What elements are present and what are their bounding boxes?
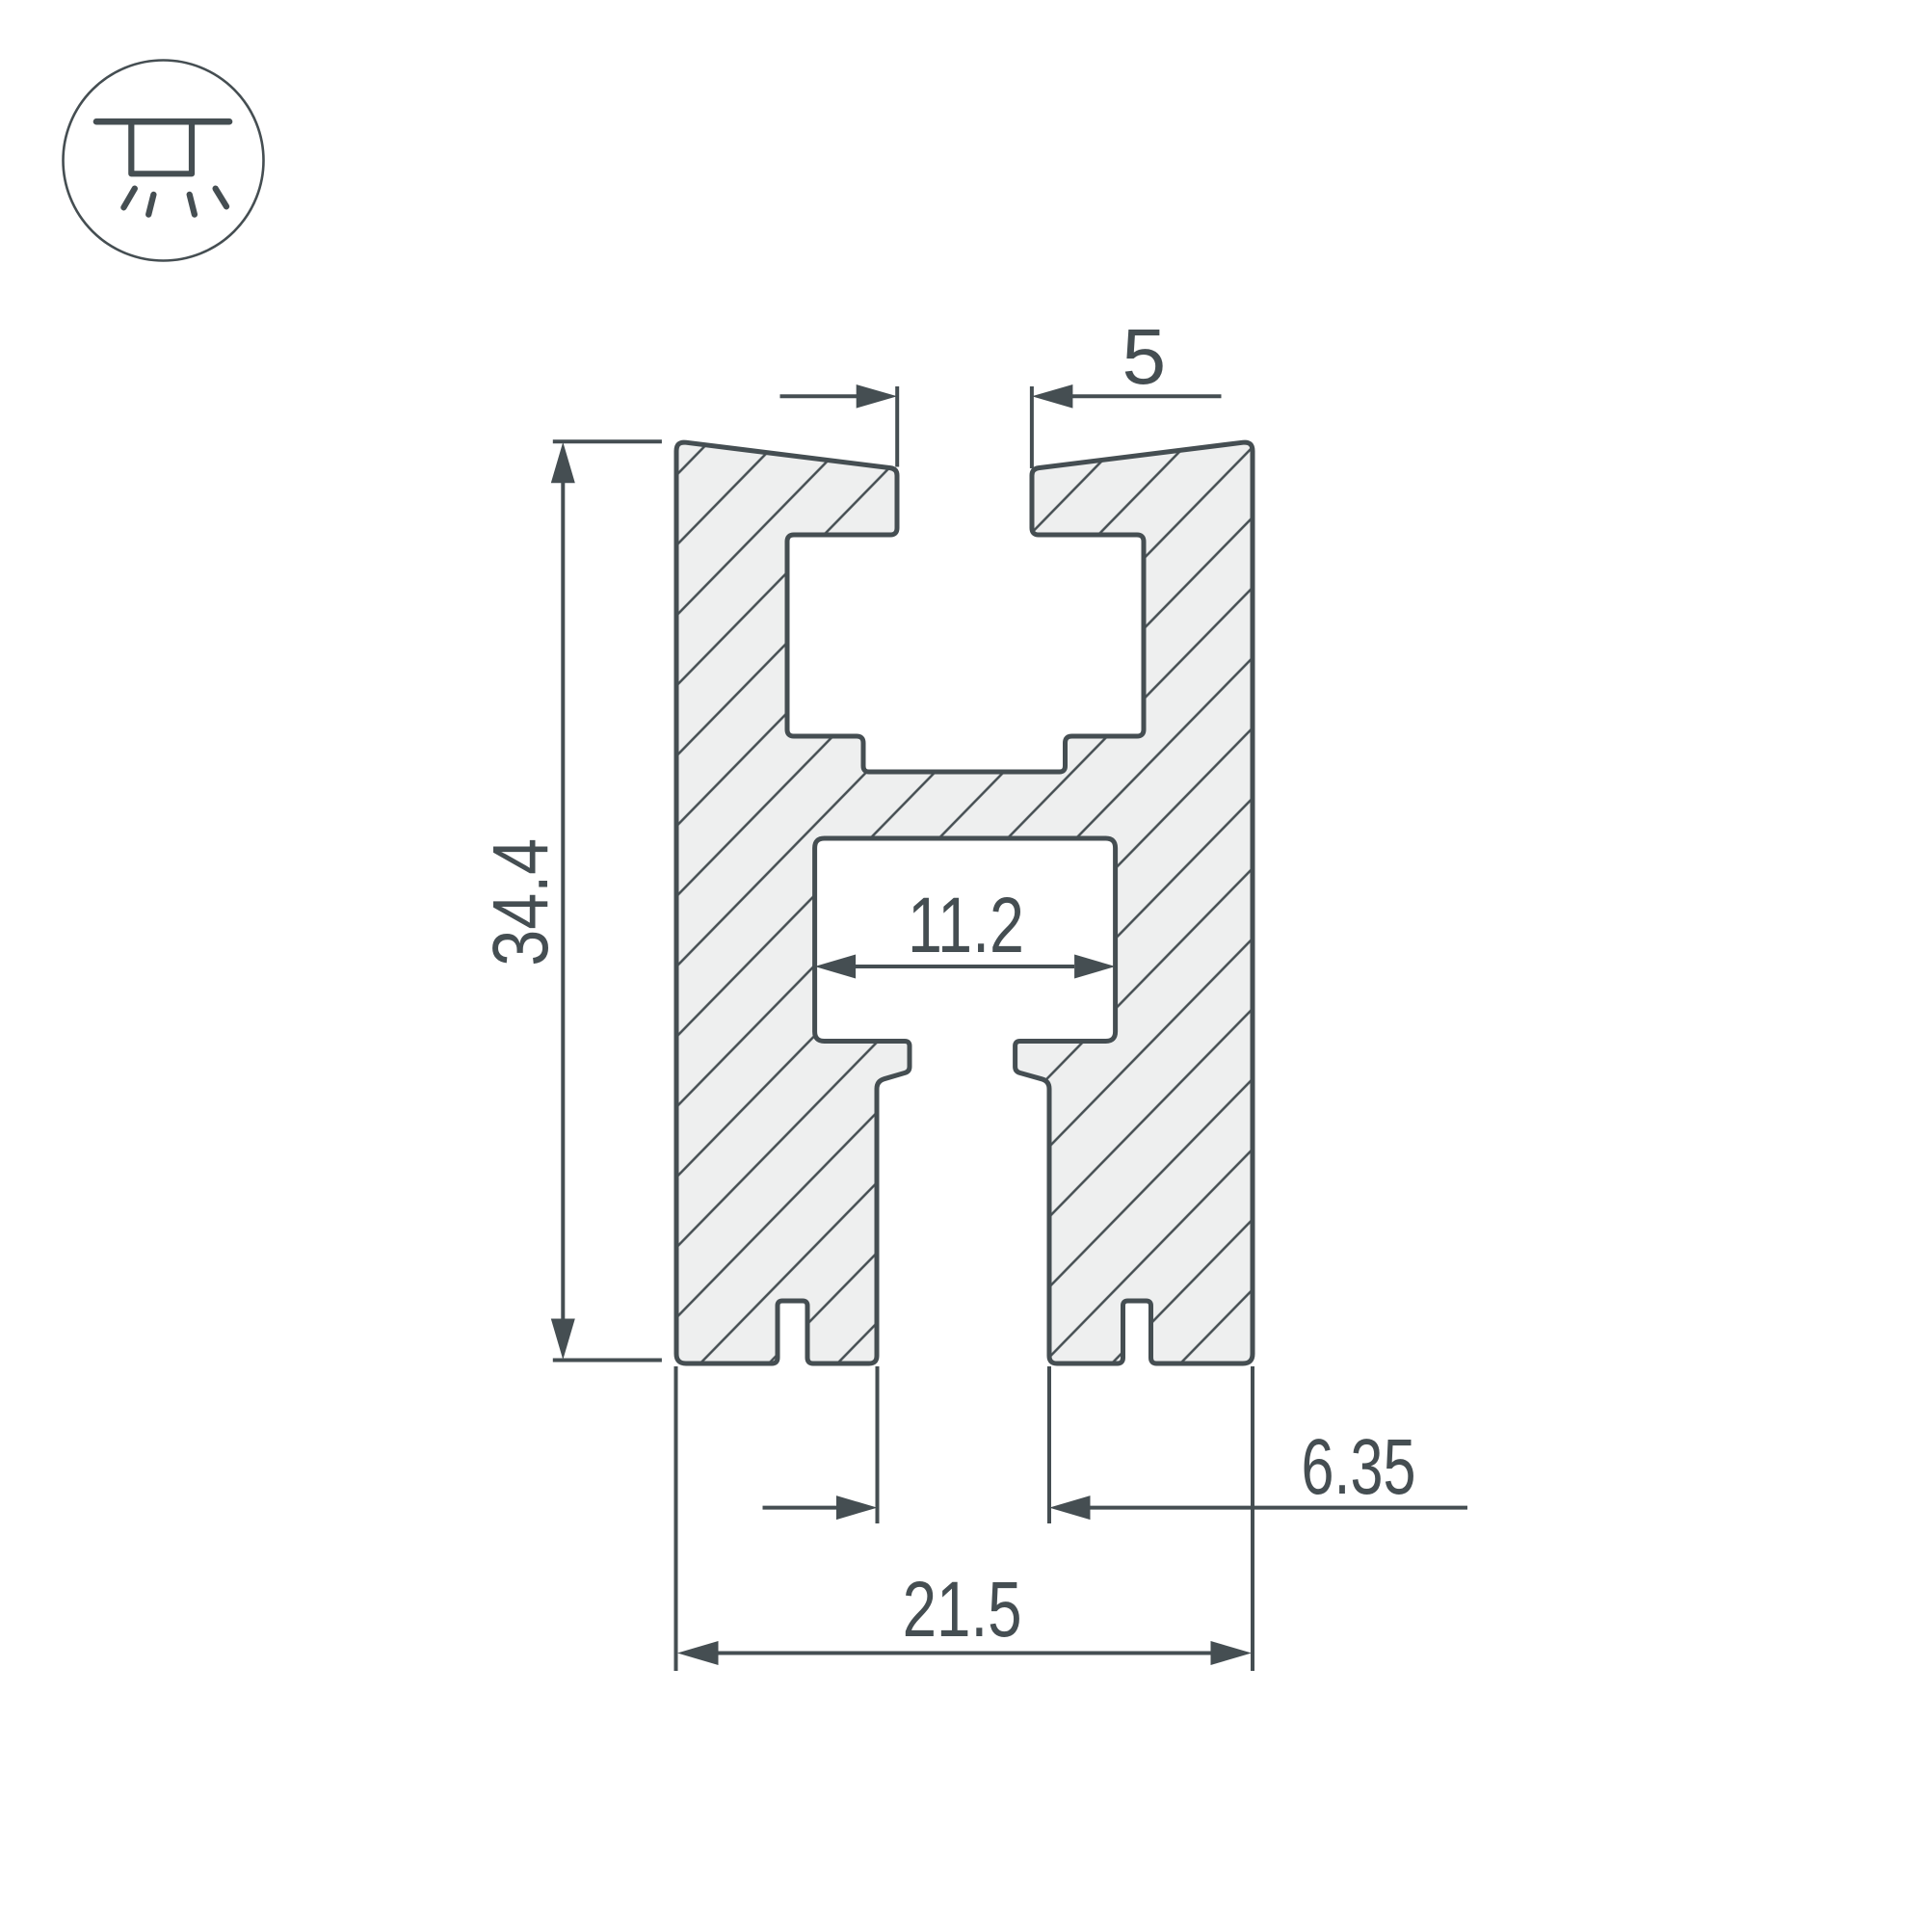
svg-text:21.5: 21.5 bbox=[903, 1566, 1022, 1654]
svg-text:34.4: 34.4 bbox=[477, 838, 565, 966]
svg-text:6.35: 6.35 bbox=[1302, 1423, 1416, 1511]
svg-text:5: 5 bbox=[1122, 313, 1166, 401]
svg-text:11.2: 11.2 bbox=[908, 882, 1024, 969]
